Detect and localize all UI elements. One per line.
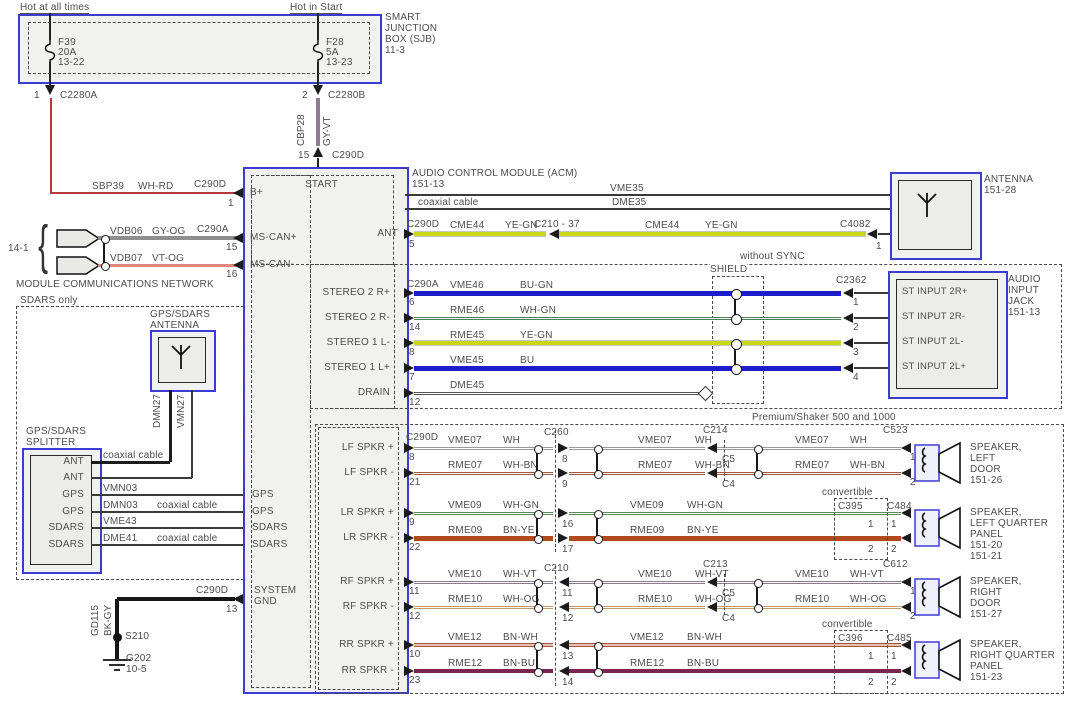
spkr-circuit-1: RME10 <box>448 594 482 605</box>
dest-pin: 2 <box>891 677 897 688</box>
twisted-pair-c1 <box>534 642 543 651</box>
spkr-circuit-1: VME10 <box>448 569 482 580</box>
speaker-label-line: LEFT QUARTER <box>970 518 1048 529</box>
sjb-title-line: 11-3 <box>385 45 405 56</box>
splitter-wire <box>91 494 243 496</box>
stereo-wire <box>414 317 841 320</box>
mid1-arrow <box>558 468 568 478</box>
dest-connector-label: C612 <box>883 559 908 570</box>
spkr-color-1: BN-WH <box>503 632 538 643</box>
ant-dest-pin: 1 <box>876 241 882 252</box>
stereo-acm-pin-label: STEREO 1 L- <box>316 337 390 348</box>
convertible-label: convertible <box>822 487 873 498</box>
speaker-label-line: SPEAKER, <box>970 639 1022 650</box>
speaker-label-line: DOOR <box>970 464 1001 475</box>
splitter-wire <box>91 544 243 546</box>
splitter-pin-label: GPS <box>32 506 84 517</box>
spkr-circuit-3: RME10 <box>795 594 829 605</box>
mid-connector-label: C260 <box>544 427 569 438</box>
acm-gps-pin-label: GPS <box>252 489 274 500</box>
spkr-circuit-1: RME07 <box>448 460 482 471</box>
mid-connector-line <box>555 430 556 552</box>
spkr-circuit-1: VME07 <box>448 435 482 446</box>
spkr-wire-seg1 <box>414 643 553 647</box>
spkr-circuit-2: VME12 <box>630 632 664 643</box>
jack-pin-label2: ST INPUT 2L+ <box>902 362 966 373</box>
without-sync-label: without SYNC <box>740 251 805 262</box>
spkr-acm-pin-label: LR SPKR + <box>322 507 394 518</box>
spkr-acm-pin-label: RR SPKR + <box>322 639 394 650</box>
spkr-wire-seg2 <box>569 581 705 584</box>
speaker-label-line: 151-26 <box>970 475 1002 486</box>
spkr-circuit-2: RME12 <box>630 658 664 669</box>
fuse-conn: C2280A <box>60 90 97 101</box>
fuse-pin: 1 <box>34 90 40 101</box>
spkr-color-1: BN-YE <box>503 525 535 536</box>
hot-at-all-times-label: Hot at all times <box>20 2 89 14</box>
spkr-acm-pin: 10 <box>409 649 421 660</box>
jack-label-line: 151-13 <box>1008 307 1040 318</box>
gnd-conn: C290D <box>196 585 228 596</box>
spkr-color-1: WH <box>503 435 520 446</box>
fuse-symbol <box>42 40 58 62</box>
acm-ref: 151-13 <box>412 179 444 190</box>
gnd-arrow <box>233 594 243 604</box>
sjb-title-line: SMART <box>385 12 421 23</box>
spkr-wire-seg1 <box>414 472 553 475</box>
gps-antenna-icon <box>166 342 196 372</box>
splitter-pin-label: SDARS <box>32 522 84 533</box>
spkr-acm-pin-label: RR SPKR - <box>322 665 394 676</box>
fuse-lead <box>49 62 51 87</box>
acm-ant-pin-label: ANT <box>340 228 398 239</box>
spkr-color-2: BN-YE <box>687 525 719 536</box>
mid1-arrow <box>558 443 568 453</box>
coax-line-1 <box>405 194 898 196</box>
spkr-circuit-1: VME12 <box>448 632 482 643</box>
bplus-pin: 1 <box>228 198 234 209</box>
spkr-circuit-2: RME10 <box>638 594 672 605</box>
spkr-wire-seg1 <box>414 669 553 673</box>
c290d-feed-arrow <box>313 147 323 157</box>
stereo-wire <box>414 366 841 371</box>
jack-arrow <box>843 338 853 348</box>
splitter-circuit: DMN03 <box>103 500 138 511</box>
premium-label: Premium/Shaker 500 and 1000 <box>752 412 896 423</box>
mid1-arrow <box>558 533 568 543</box>
mid1-pin: 17 <box>562 544 574 555</box>
splitter-label-1: GPS/SDARS <box>26 426 86 437</box>
mid1-arrow <box>559 577 569 587</box>
spkr-circuit-2: VME07 <box>638 435 672 446</box>
speaker-label-line: 151-21 <box>970 551 1002 562</box>
splitter-wire <box>91 477 192 479</box>
dest-connector-label: C523 <box>883 425 908 436</box>
spkr-acm-pin: 11 <box>409 586 420 597</box>
splitter-note: coaxial cable <box>157 500 217 511</box>
mid1-pin: 11 <box>562 588 573 599</box>
stereo-color: BU-GN <box>520 280 553 291</box>
acm-sysgnd-1: SYSTEM <box>254 585 296 596</box>
stereo-circuit: VME45 <box>450 355 484 366</box>
fuse-conn: C2280B <box>328 90 365 101</box>
twisted-pair-c2 <box>534 604 543 613</box>
mid2-connector-line <box>724 440 725 481</box>
spkr-circuit-1: RME09 <box>448 525 482 536</box>
mid1-arrow <box>559 640 569 650</box>
spkr-wire-seg1 <box>414 536 553 541</box>
speaker-label-line: LEFT <box>970 453 995 464</box>
bplus-arrow <box>233 188 243 198</box>
jack-arrow <box>843 363 853 373</box>
comms-circuit: VDB07 <box>110 253 143 264</box>
hot-in-start-label: Hot in Start <box>290 2 342 14</box>
coax-circuit-2: DME35 <box>612 197 646 208</box>
convertible-label: convertible <box>822 619 873 630</box>
mid2-arrow <box>707 602 717 612</box>
spkr-acm-pin-label: LF SPKR + <box>322 442 394 453</box>
comms-circuit: VDB06 <box>110 226 143 237</box>
shield-twist-2-c1 <box>731 339 742 350</box>
spkr-color-1: WH-GN <box>503 500 539 511</box>
coax-line-2 <box>405 208 898 210</box>
mid1-arrow <box>559 602 569 612</box>
twisted-pair-c2 <box>594 604 603 613</box>
ant-acm-conn: C290D <box>407 219 439 230</box>
stereo-wire <box>414 392 700 395</box>
jack-conn: C2362 <box>836 275 866 286</box>
spkr-wire-seg3 <box>717 581 901 584</box>
spkr-acm-pin: 22 <box>409 542 421 553</box>
mid1-arrow <box>558 508 568 518</box>
bplus-circuit: SBP39 <box>92 181 124 192</box>
stereo-acm-conn: C290A <box>407 279 439 290</box>
gnd-color: BK-GY <box>103 600 114 636</box>
twisted-pair-c2 <box>534 668 543 677</box>
coax-circuit-1: VME35 <box>610 183 644 194</box>
bplus-color: WH-RD <box>138 181 173 192</box>
jack-pin: 1 <box>853 297 859 308</box>
gnd-circuit: GD115 <box>90 600 101 636</box>
c290d-feed-conn: C290D <box>332 150 364 161</box>
ant-color-2: YE-GN <box>705 220 738 231</box>
ant-dest-arrow <box>867 229 877 239</box>
dest-pin: 1 <box>891 519 897 530</box>
mid2-arrow <box>707 577 717 587</box>
spkr-wire-seg2 <box>569 472 705 475</box>
antenna-icon <box>912 190 944 224</box>
speaker-label-line: SPEAKER, <box>970 442 1022 453</box>
spkr-acm-pin-label: RF SPKR + <box>322 576 394 587</box>
fuse-ref: 13-23 <box>326 57 353 68</box>
twisted-pair-c1 <box>594 510 603 519</box>
comms-brace: { <box>38 216 48 274</box>
splitter-circuit: DME41 <box>103 533 137 544</box>
twisted-pair-c1 <box>594 445 603 454</box>
gnd-pin: 13 <box>226 604 238 615</box>
spkr-color-1: WH-OG <box>503 594 540 605</box>
spkr-color-1: WH-VT <box>503 569 537 580</box>
speaker-label-line: RIGHT <box>970 587 1002 598</box>
spkr-wire-seg1 <box>414 512 553 515</box>
comms-twist-c1 <box>101 235 110 244</box>
stereo-acm-pin-label: STEREO 2 R- <box>316 312 390 323</box>
gps-antenna-label-1: GPS/SDARS <box>150 309 210 320</box>
jack-pin-label2: ST INPUT 2R- <box>902 312 965 323</box>
twisted-pair-c2 <box>754 604 763 613</box>
comms-connector <box>56 229 100 248</box>
stereo-acm-pin: 6 <box>409 297 415 308</box>
speaker-label-line: PANEL <box>970 529 1003 540</box>
speaker-label-line: 151-23 <box>970 672 1002 683</box>
mid2-arrow <box>707 443 717 453</box>
dest-arrow <box>901 666 911 676</box>
twisted-pair-c1 <box>534 445 543 454</box>
mid1-pin: 12 <box>562 613 574 624</box>
stereo-wire <box>414 341 841 345</box>
fuse-symbol <box>310 40 326 62</box>
comms-conn: C290A <box>197 224 229 235</box>
gnd-splice-dot <box>113 633 122 642</box>
spkr-wire-seg2 <box>569 606 705 609</box>
gnd-wire-h <box>117 597 235 601</box>
spkr-wire-seg2 <box>569 447 705 450</box>
antenna-label-2: 151-28 <box>984 185 1016 196</box>
spkr-acm-pin-label: RF SPKR - <box>322 601 394 612</box>
gnd-id: G202 <box>126 653 151 664</box>
spkr-wire-seg1 <box>414 581 553 584</box>
jack-pin: 4 <box>853 372 859 383</box>
spkr-circuit-2: RME07 <box>638 460 672 471</box>
bplus-wire <box>51 192 235 194</box>
spkr-circuit-2: VME09 <box>630 500 664 511</box>
comms-color: VT-OG <box>152 253 184 264</box>
stereo-circuit: VME46 <box>450 280 484 291</box>
mid2-connector-line <box>724 574 725 615</box>
acm-sysgnd-2: GND <box>254 596 277 607</box>
ant-circuit-1: CME44 <box>450 220 484 231</box>
splitter-pin-label: SDARS <box>32 539 84 550</box>
splitter-pin-label: ANT <box>32 456 84 467</box>
speaker-icon <box>914 638 964 682</box>
twisted-pair-c2 <box>534 470 543 479</box>
comms-pin: 16 <box>226 269 238 280</box>
shield-twist-2-c2 <box>731 364 742 375</box>
coax-note: coaxial cable <box>418 197 478 208</box>
gnd-splice: S210 <box>125 631 149 642</box>
spkr-color-2: BN-BU <box>687 658 719 669</box>
stereo-acm-pin: 12 <box>409 397 421 408</box>
dest-arrow <box>901 508 911 518</box>
mid1-arrow <box>559 666 569 676</box>
spkr-circuit-3: VME07 <box>795 435 829 446</box>
mid1-pin: 14 <box>562 677 574 688</box>
twisted-pair-c1 <box>754 445 763 454</box>
dest-arrow <box>901 640 911 650</box>
spkr-circuit-2: RME09 <box>630 525 664 536</box>
bplus-conn: C290D <box>194 179 226 190</box>
jack-label-line: JACK <box>1008 296 1034 307</box>
gnd-wire-v <box>115 599 119 659</box>
acm-gps-pin-label: SDARS <box>252 539 287 550</box>
spkr-wire-seg3 <box>717 472 901 475</box>
shield-twist-1-c1 <box>731 289 742 300</box>
spkr-circuit-2: VME10 <box>638 569 672 580</box>
spkr-acm-pin-label: LR SPKR - <box>322 532 394 543</box>
spkr-acm-conn: C290D <box>406 432 438 443</box>
sjb-title-line: JUNCTION <box>385 23 437 34</box>
stereo-acm-pin: 14 <box>409 322 421 333</box>
sdars-section-label: SDARS only <box>20 295 78 306</box>
jack-label-line: INPUT <box>1008 285 1039 296</box>
fuse-ref: 13-22 <box>58 57 85 68</box>
fuse-lead <box>49 13 51 40</box>
twisted-pair-c2 <box>534 535 543 544</box>
mid1-pin: 16 <box>562 519 574 530</box>
spkr-acm-pin-label: LF SPKR - <box>322 467 394 478</box>
spkr-circuit-3: VME10 <box>795 569 829 580</box>
spkr-color-3: WH-OG <box>850 594 887 605</box>
mid2-arrow <box>707 468 717 478</box>
conv-connector-label: C395 <box>838 501 863 512</box>
spkr-circuit-1: RME12 <box>448 658 482 669</box>
jack-pin: 3 <box>853 347 859 358</box>
speaker-label-line: 151-27 <box>970 609 1002 620</box>
stereo-acm-pin: 7 <box>409 372 415 383</box>
twisted-pair-c1 <box>594 642 603 651</box>
splitter-pin-label: ANT <box>32 472 84 483</box>
fuse-lead <box>317 62 319 87</box>
splitter-pin-label: GPS <box>32 489 84 500</box>
stereo-color: BU <box>520 355 534 366</box>
c290d-feed-pin: 15 <box>298 150 310 161</box>
stereo-acm-pin: 8 <box>409 347 415 358</box>
ant-acm-pin: 5 <box>409 239 415 250</box>
cbp28-color: GY-VT <box>322 100 333 146</box>
gps-ant-circuit-1: DMN27 <box>152 388 163 428</box>
comms-acm-label: MS-CAN- <box>250 259 294 270</box>
spkr-acm-pin: 21 <box>409 477 421 488</box>
speaker-label-line: SPEAKER, <box>970 507 1022 518</box>
jack-pin: 2 <box>853 322 859 333</box>
spkr-wire-seg3 <box>717 606 901 609</box>
comms-acm-label: MS-CAN+ <box>250 232 297 243</box>
speaker-label-line: DOOR <box>970 598 1001 609</box>
comms-twist-c2 <box>101 262 110 271</box>
spkr-wire-seg3 <box>717 447 901 450</box>
twisted-pair-c2 <box>594 470 603 479</box>
splitter-wire <box>91 511 243 513</box>
ant-dest-conn: C4082 <box>840 219 870 230</box>
gnd-ref: 10-5 <box>126 664 147 675</box>
stereo-acm-pin-label: STEREO 1 L+ <box>316 362 390 373</box>
spkr-acm-pin: 23 <box>409 675 421 686</box>
splitter-note: coaxial cable <box>103 450 163 461</box>
antenna-label-1: ANTENNA <box>984 174 1033 185</box>
sjb-title-line: BOX (SJB) <box>385 34 436 45</box>
spkr-wire-seg1 <box>414 447 553 450</box>
splitter-circuit: VMN03 <box>103 483 137 494</box>
stereo-color: WH-GN <box>520 305 556 316</box>
mid-connector-line <box>555 566 556 686</box>
dest-pin: 1 <box>891 651 897 662</box>
gps-ant-circuit-2: VMN27 <box>176 388 187 428</box>
jack-pin-label2: ST INPUT 2L- <box>902 337 964 348</box>
splitter-circuit: VME43 <box>103 516 137 527</box>
spkr-color-3: WH-BN <box>850 460 885 471</box>
fuse-output-arrow <box>313 85 323 95</box>
shield-twist-1-c2 <box>731 314 742 325</box>
spkr-acm-pin: 9 <box>409 517 415 528</box>
speaker-icon <box>914 441 964 485</box>
spkr-circuit-3: RME07 <box>795 460 829 471</box>
stereo-acm-pin-label: DRAIN <box>316 387 390 398</box>
jack-arrow <box>843 288 853 298</box>
ant-wire-2 <box>559 232 866 236</box>
jack-pin-label2: ST INPUT 2R+ <box>902 287 968 298</box>
speaker-label-line: 151-20 <box>970 540 1002 551</box>
comms-pin: 15 <box>226 242 238 253</box>
twisted-pair-c2 <box>594 668 603 677</box>
bplus-vert-wire <box>50 98 52 194</box>
acm-left-pin-box <box>251 175 311 688</box>
dest-pin: 2 <box>891 544 897 555</box>
ant-acm-arrow <box>404 229 414 239</box>
comms-network-label: MODULE COMMUNICATIONS NETWORK <box>16 279 214 290</box>
cbp28-overlay <box>316 98 320 146</box>
acm-gps-pin-label: SDARS <box>252 522 287 533</box>
spkr-color-3: WH-VT <box>850 569 884 580</box>
twisted-pair-c1 <box>534 510 543 519</box>
comms-connector <box>56 256 100 275</box>
spkr-color-2: WH-GN <box>687 500 723 511</box>
acm-gps-pin-label: GPS <box>252 506 274 517</box>
shield-label: SHIELD <box>710 264 747 275</box>
stereo-circuit: RME45 <box>450 330 484 341</box>
spkr-acm-pin: 8 <box>409 452 415 463</box>
twisted-pair-c2 <box>594 535 603 544</box>
jack-arrow <box>843 313 853 323</box>
gps-ant-thin-vert <box>191 390 193 478</box>
wiring-diagram-canvas: Hot at all timesHot in StartSMARTJUNCTIO… <box>0 0 1079 708</box>
spkr-color-3: WH <box>850 435 867 446</box>
fuse-lead <box>317 13 319 40</box>
gps-ant-coax-vert <box>169 390 172 462</box>
mid1-pin: 9 <box>562 479 568 490</box>
splitter-wire <box>91 527 243 529</box>
acm-bplus-pin-label: B+ <box>250 187 263 198</box>
conv-connector-label: C396 <box>838 633 863 644</box>
stereo-circuit: DME45 <box>450 380 484 391</box>
twisted-pair-c1 <box>534 579 543 588</box>
spkr-color-1: WH-BN <box>503 460 538 471</box>
stereo-acm-pin-label: STEREO 2 R+ <box>316 287 390 298</box>
dest-arrow <box>901 533 911 543</box>
twisted-pair-c1 <box>754 579 763 588</box>
twisted-pair-c2 <box>754 470 763 479</box>
jack-label-line: AUDIO <box>1008 274 1041 285</box>
ant-mid-arrow <box>549 229 559 239</box>
speaker-icon <box>914 575 964 619</box>
spkr-wire-seg1 <box>414 606 553 609</box>
cbp28-circuit: CBP28 <box>296 100 307 146</box>
speaker-label-line: RIGHT QUARTER <box>970 650 1055 661</box>
mid1-pin: 13 <box>562 651 574 662</box>
spkr-acm-pin: 12 <box>409 611 421 622</box>
comms-color: GY-OG <box>152 226 185 237</box>
acm-title: AUDIO CONTROL MODULE (ACM) <box>412 168 577 179</box>
spkr-circuit-1: VME09 <box>448 500 482 511</box>
